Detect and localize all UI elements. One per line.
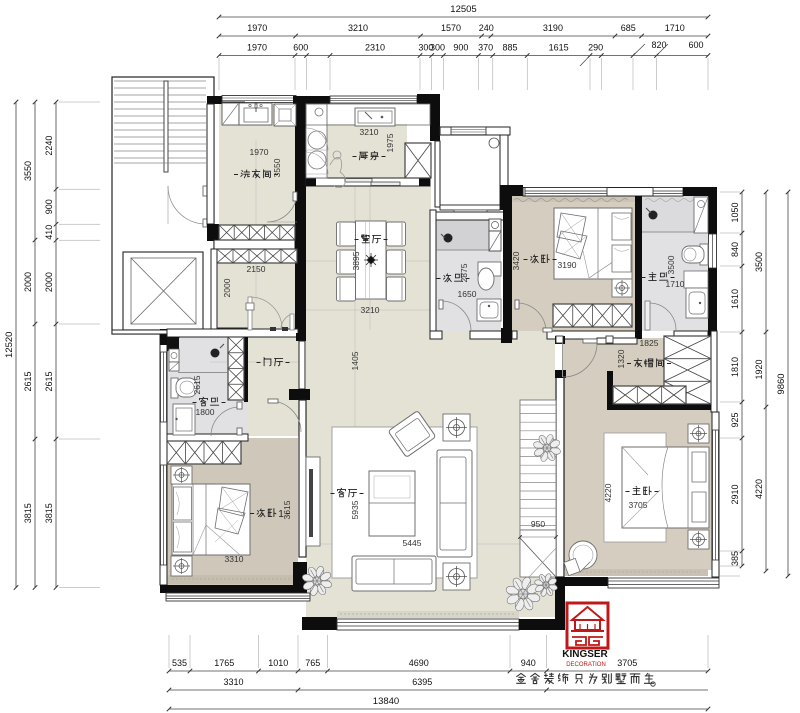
svg-text:535: 535 — [172, 658, 187, 668]
svg-text:385: 385 — [730, 551, 740, 566]
svg-text:600: 600 — [688, 40, 703, 50]
svg-text:1970: 1970 — [250, 147, 269, 157]
svg-text:1650: 1650 — [458, 289, 477, 299]
svg-text:DECORATION: DECORATION — [566, 662, 606, 668]
svg-text:2615: 2615 — [23, 371, 33, 391]
svg-text:840: 840 — [730, 242, 740, 257]
svg-text:1405: 1405 — [350, 351, 360, 370]
svg-text:885: 885 — [502, 43, 517, 53]
svg-text:5935: 5935 — [350, 500, 360, 519]
svg-text:370: 370 — [478, 43, 493, 53]
svg-text:3895: 3895 — [351, 251, 361, 270]
svg-text:2310: 2310 — [365, 43, 385, 53]
svg-text:5445: 5445 — [403, 538, 422, 548]
svg-text:3210: 3210 — [348, 23, 368, 33]
svg-text:2150: 2150 — [247, 264, 266, 274]
svg-text:925: 925 — [730, 412, 740, 427]
svg-text:1710: 1710 — [665, 23, 685, 33]
svg-text:290: 290 — [588, 43, 603, 53]
svg-text:KINGSER: KINGSER — [562, 649, 608, 660]
svg-text:1570: 1570 — [441, 23, 461, 33]
svg-text:600: 600 — [293, 43, 308, 53]
svg-text:3310: 3310 — [225, 554, 244, 564]
svg-text:13840: 13840 — [373, 696, 399, 707]
svg-text:3210: 3210 — [361, 305, 380, 315]
svg-text:1765: 1765 — [214, 658, 234, 668]
svg-text:1615: 1615 — [549, 43, 569, 53]
svg-text:240: 240 — [479, 23, 494, 33]
svg-text:1010: 1010 — [268, 658, 288, 668]
svg-text:3815: 3815 — [23, 503, 33, 523]
svg-text:3705: 3705 — [617, 658, 637, 668]
svg-text:9860: 9860 — [776, 373, 787, 394]
svg-text:1970: 1970 — [247, 43, 267, 53]
svg-text:765: 765 — [305, 658, 320, 668]
svg-text:1800: 1800 — [196, 407, 215, 417]
svg-text:3550: 3550 — [23, 161, 33, 181]
svg-text:1320: 1320 — [616, 349, 626, 368]
svg-text:1810: 1810 — [730, 357, 740, 377]
svg-text:2240: 2240 — [44, 136, 54, 156]
svg-text:4220: 4220 — [754, 479, 764, 499]
svg-text:900: 900 — [453, 43, 468, 53]
svg-text:3500: 3500 — [754, 252, 764, 272]
svg-text:12520: 12520 — [4, 332, 15, 358]
svg-text:3615: 3615 — [282, 500, 292, 519]
svg-text:4690: 4690 — [409, 658, 429, 668]
svg-text:1920: 1920 — [754, 359, 764, 379]
svg-text:2000: 2000 — [222, 278, 232, 297]
svg-text:3500: 3500 — [666, 255, 676, 274]
svg-text:820: 820 — [651, 40, 666, 50]
svg-text:2615: 2615 — [192, 375, 202, 394]
svg-text:940: 940 — [521, 658, 536, 668]
svg-text:4220: 4220 — [603, 483, 613, 502]
svg-text:3310: 3310 — [223, 677, 243, 687]
svg-text:6395: 6395 — [412, 677, 432, 687]
svg-text:3190: 3190 — [558, 260, 577, 270]
svg-text:3210: 3210 — [360, 127, 379, 137]
svg-text:410: 410 — [44, 225, 54, 240]
svg-text:1610: 1610 — [730, 289, 740, 309]
svg-text:': ' — [607, 646, 609, 656]
svg-text:900: 900 — [44, 199, 54, 214]
svg-text:300: 300 — [430, 43, 445, 53]
svg-text:3550: 3550 — [272, 158, 282, 177]
svg-text:2000: 2000 — [44, 272, 54, 292]
svg-text:1970: 1970 — [247, 23, 267, 33]
svg-text:1050: 1050 — [730, 202, 740, 222]
svg-text:3190: 3190 — [543, 23, 563, 33]
svg-text:685: 685 — [621, 23, 636, 33]
svg-text:950: 950 — [531, 519, 545, 529]
svg-text:12505: 12505 — [450, 4, 476, 15]
svg-text:2875: 2875 — [459, 263, 469, 282]
svg-text:3420: 3420 — [511, 251, 521, 270]
svg-text:1825: 1825 — [640, 338, 659, 348]
svg-text:1975: 1975 — [385, 133, 395, 152]
svg-text:2000: 2000 — [23, 272, 33, 292]
svg-text:1710: 1710 — [666, 279, 685, 289]
svg-text:3815: 3815 — [44, 503, 54, 523]
svg-text:2910: 2910 — [730, 484, 740, 504]
svg-text:3705: 3705 — [629, 500, 648, 510]
svg-text:2615: 2615 — [44, 371, 54, 391]
